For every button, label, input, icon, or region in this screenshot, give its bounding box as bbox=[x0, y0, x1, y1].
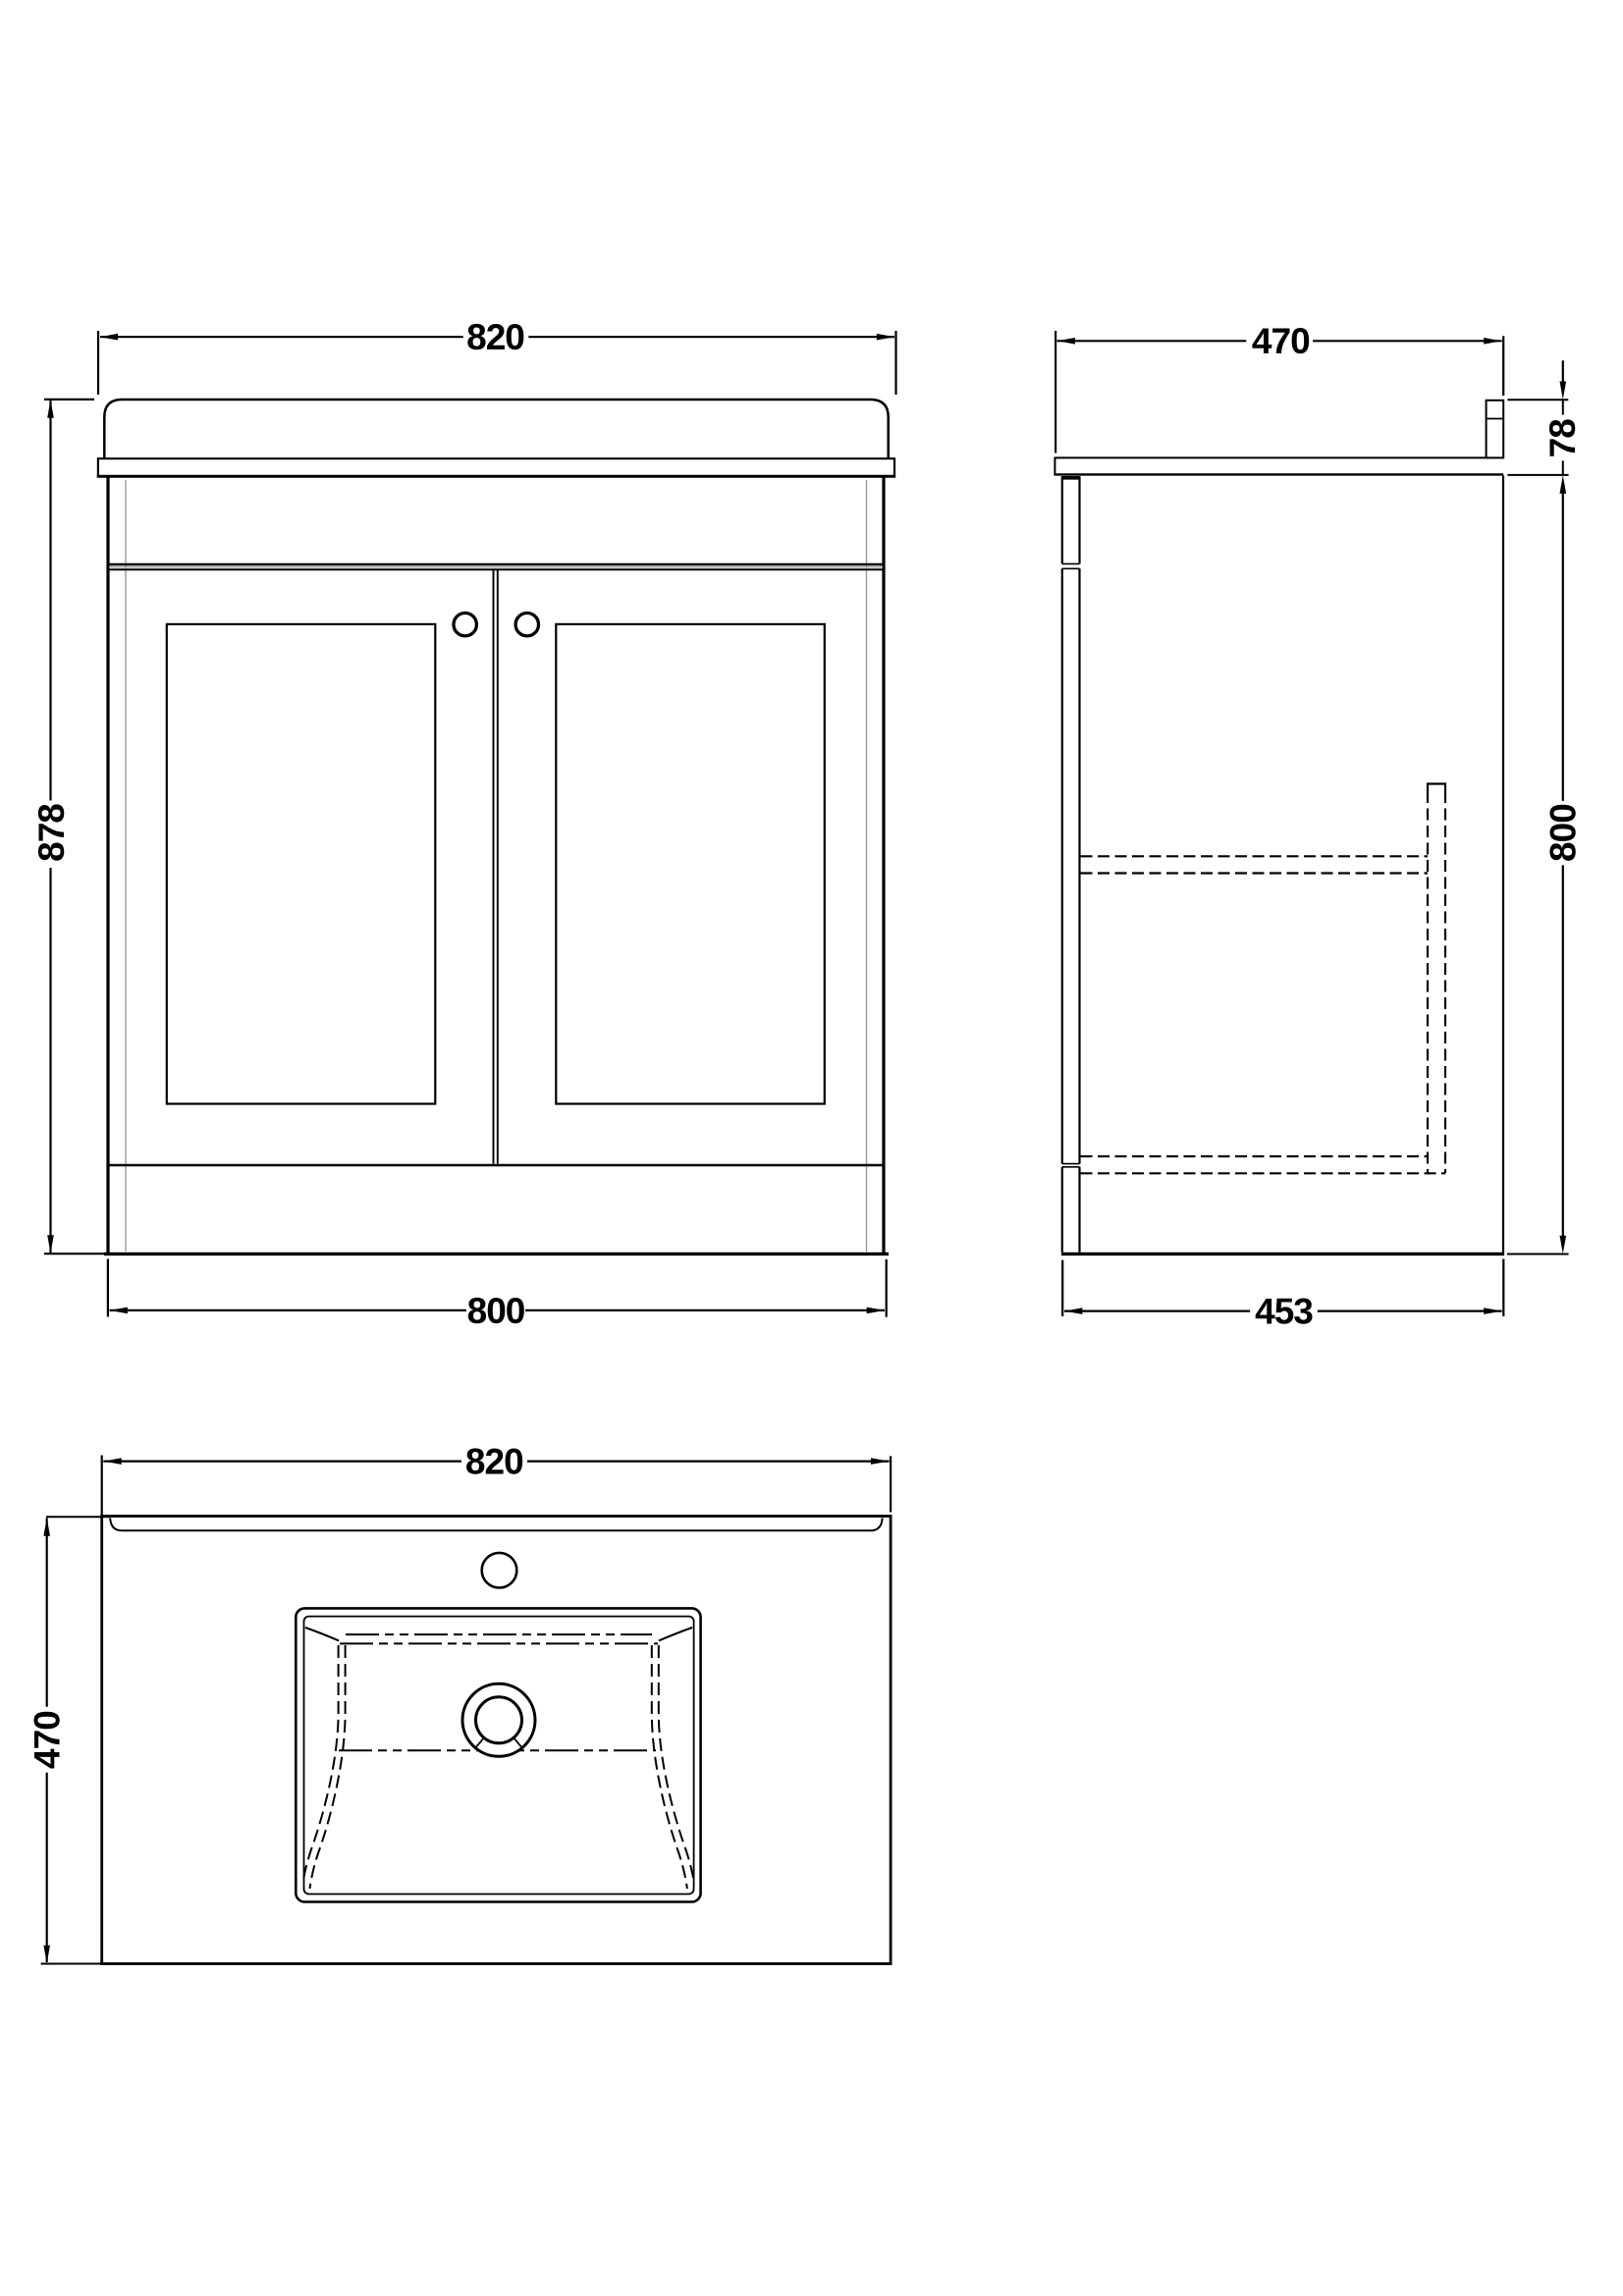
svg-text:800: 800 bbox=[467, 1291, 525, 1331]
svg-text:820: 820 bbox=[466, 317, 524, 357]
svg-text:453: 453 bbox=[1255, 1291, 1313, 1331]
svg-text:470: 470 bbox=[27, 1711, 67, 1769]
svg-text:820: 820 bbox=[465, 1441, 523, 1481]
svg-text:470: 470 bbox=[1252, 321, 1310, 361]
svg-text:878: 878 bbox=[31, 804, 72, 862]
svg-text:800: 800 bbox=[1543, 804, 1584, 862]
svg-text:78: 78 bbox=[1542, 419, 1583, 458]
